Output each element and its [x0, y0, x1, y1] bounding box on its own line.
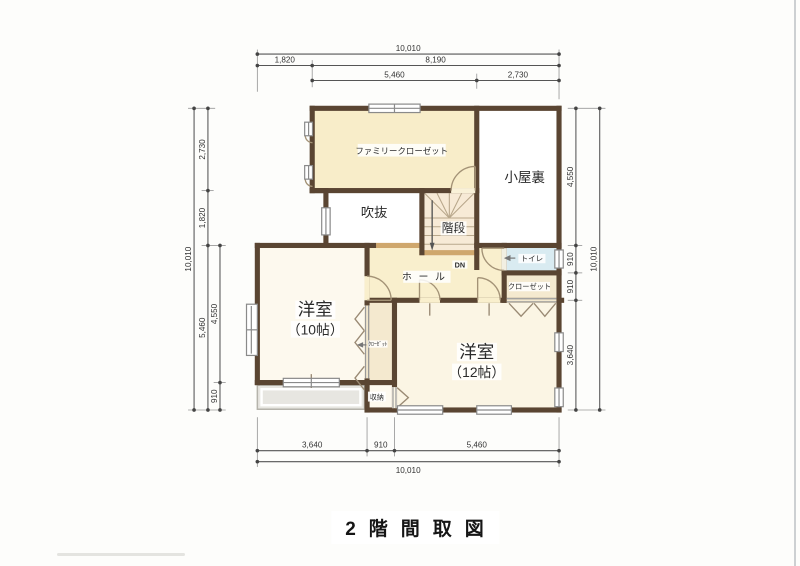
dim-right-total: 10,010	[590, 246, 599, 271]
window-family-closet-left-2	[305, 166, 313, 180]
room-label-room12-name: 洋室	[459, 342, 494, 362]
room-label-room12-size: （12帖）	[448, 364, 505, 380]
dim-bottom-3640: 3,640	[302, 441, 323, 450]
dim-bottom-5460: 5,460	[467, 441, 488, 450]
scanned-floor-plan-page: 10,010 1,820 8,190 5,460 2,730 10,010 2,…	[0, 0, 800, 566]
room-label-closet-strip: ｸﾛｰｾﾞｯﾄ	[368, 341, 387, 348]
dim-top-total: 10,010	[396, 44, 421, 53]
room-label-closet: クローゼット	[508, 282, 551, 291]
dim-right-910a: 910	[566, 252, 575, 266]
dim-bottom-910: 910	[374, 441, 388, 450]
room-label-hall: ホール	[402, 271, 452, 283]
bay-window-room10	[247, 304, 258, 355]
dim-left-5460: 5,460	[198, 317, 207, 338]
window-top-family-closet	[369, 104, 420, 112]
dim-right-3640: 3,640	[566, 345, 575, 366]
dim-right-910b: 910	[566, 279, 575, 293]
window-room12-right-2	[555, 388, 563, 407]
dim-top-8190: 8,190	[425, 56, 446, 65]
dim-left-2730: 2,730	[198, 139, 207, 160]
dim-left-910: 910	[210, 389, 219, 403]
room-label-room10-name: 洋室	[298, 300, 333, 320]
dim-top-5460: 5,460	[384, 71, 405, 80]
dim-top-2730: 2,730	[508, 71, 529, 80]
dim-top-1820: 1,820	[275, 56, 296, 65]
room-label-family-closet: ファミリークローゼット	[355, 146, 448, 156]
dim-bottom-total: 10,010	[396, 466, 421, 475]
window-room12-bottom-2	[477, 406, 512, 414]
window-toilet-right	[555, 250, 563, 268]
dim-left-total: 10,010	[184, 246, 193, 271]
room-label-attic: 小屋裏	[504, 170, 545, 185]
scan-edge-artifact	[794, 0, 796, 566]
dim-right-4550: 4,550	[566, 166, 575, 187]
room-label-toilet: トイレ	[521, 254, 544, 263]
dim-left-1820: 1,820	[198, 207, 207, 228]
window-family-closet-left-1	[305, 122, 313, 136]
dim-left-4550: 4,550	[210, 303, 219, 324]
window-room12-bottom-1	[397, 406, 442, 414]
room-label-void: 吹抜	[361, 205, 388, 220]
room-label-room10-size: （10帖）	[287, 321, 344, 337]
window-void-left	[322, 208, 330, 235]
window-room12-right-1	[555, 333, 563, 352]
floor-plan-drawing: 10,010 1,820 8,190 5,460 2,730 10,010 2,…	[179, 39, 619, 476]
room-label-stairs: 階段	[442, 221, 466, 235]
window-room10-bottom	[283, 378, 339, 386]
scan-smudge-artifact	[57, 553, 185, 556]
drawing-title: 2階間取図	[331, 511, 499, 544]
stairs-dn-label: DN	[455, 260, 465, 269]
